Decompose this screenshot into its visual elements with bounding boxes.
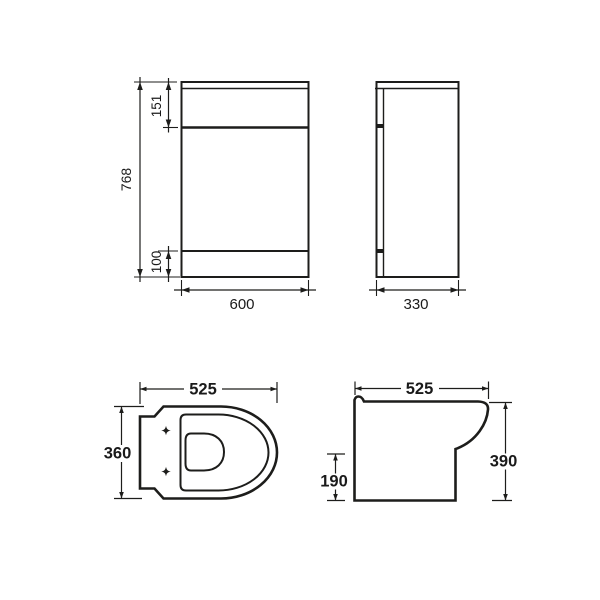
arrowhead-icon	[271, 387, 278, 392]
dim-151-label: 151	[149, 95, 164, 118]
arrowhead-icon	[503, 494, 508, 501]
arrowhead-icon	[182, 287, 190, 293]
dim-390-label: 390	[490, 453, 518, 471]
arrowhead-icon	[119, 492, 124, 499]
pan-top-view: 525 360	[100, 381, 278, 499]
arrowhead-icon	[119, 407, 124, 414]
dim-330-label: 330	[403, 296, 428, 313]
dim-360-label: 360	[104, 445, 132, 463]
arrowhead-icon	[166, 269, 172, 277]
dim-100-label: 100	[149, 251, 164, 274]
arrowhead-icon	[166, 120, 172, 128]
unit-front-outline	[182, 82, 309, 277]
arrowhead-icon	[166, 82, 172, 90]
arrowhead-icon	[503, 403, 508, 410]
arrowhead-icon	[301, 287, 309, 293]
pan-top-outline	[140, 407, 277, 499]
arrowhead-icon	[140, 387, 147, 392]
unit-side-outline	[377, 82, 459, 277]
arrowhead-icon	[482, 386, 489, 391]
arrowhead-icon	[355, 386, 362, 391]
pan-side-view: 525 390 190	[318, 380, 522, 501]
arrowhead-icon	[377, 287, 385, 293]
dim-768-label: 768	[118, 168, 134, 192]
hinge-mark	[377, 249, 384, 253]
dim-190-label: 190	[320, 473, 348, 491]
arrowhead-icon	[166, 251, 172, 259]
arrowhead-icon	[333, 454, 338, 461]
arrowhead-icon	[333, 494, 338, 501]
arrowhead-icon	[451, 287, 459, 293]
technical-drawing-canvas: 768 151 100 600 330	[0, 0, 600, 600]
drawing-svg: 768 151 100 600 330	[0, 0, 600, 600]
dim-525-top-label: 525	[189, 381, 217, 399]
pan-side-outline	[355, 397, 489, 501]
dim-525-side-label: 525	[406, 380, 434, 398]
unit-side-view: 330	[369, 82, 466, 313]
hinge-mark	[377, 124, 384, 128]
arrowhead-icon	[137, 82, 143, 90]
dim-600-label: 600	[229, 296, 254, 313]
unit-front-view: 768 151 100 600	[118, 77, 316, 313]
arrowhead-icon	[137, 269, 143, 277]
